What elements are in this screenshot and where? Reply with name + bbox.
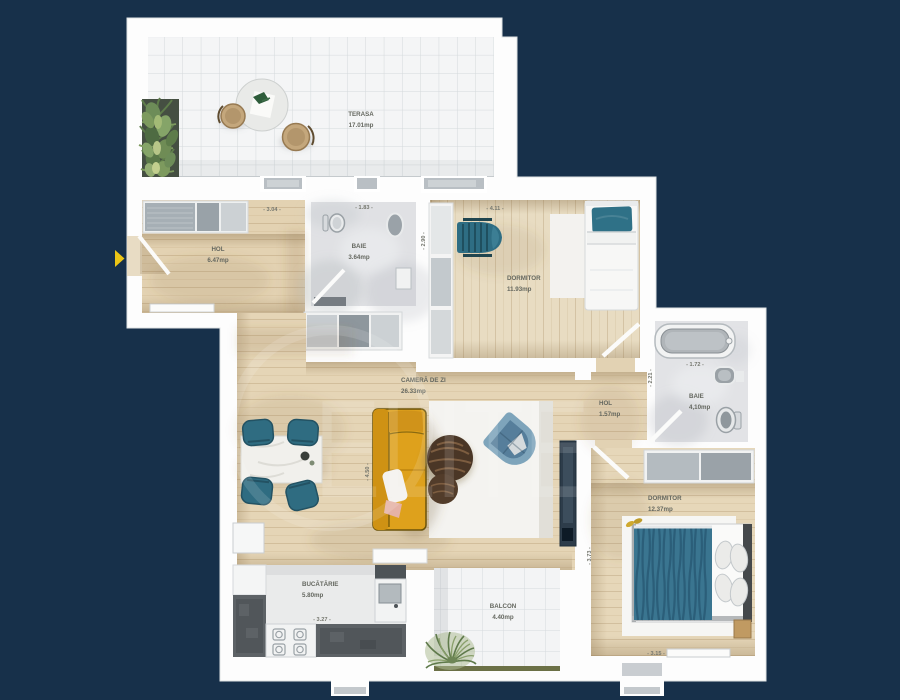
svg-text:ELITE: ELITE <box>314 371 589 527</box>
svg-text:17.01mp: 17.01mp <box>349 122 374 129</box>
svg-text:5.80mp: 5.80mp <box>302 592 324 599</box>
svg-text:- 3.15 -: - 3.15 - <box>647 651 665 657</box>
svg-text:12.37mp: 12.37mp <box>648 506 673 513</box>
svg-text:4.40mp: 4.40mp <box>492 614 514 621</box>
svg-text:- 2.90 -: - 2.90 - <box>421 232 427 250</box>
svg-text:- 2.21 -: - 2.21 - <box>648 369 654 387</box>
svg-text:DORMITOR: DORMITOR <box>648 495 682 502</box>
svg-text:- 3.73 -: - 3.73 - <box>587 547 593 565</box>
svg-text:DORMITOR: DORMITOR <box>507 275 541 282</box>
svg-text:- 1.72 -: - 1.72 - <box>686 362 704 368</box>
svg-text:HOL: HOL <box>599 400 612 407</box>
svg-text:- 1.83 -: - 1.83 - <box>355 205 373 211</box>
svg-text:BAIE: BAIE <box>352 243 367 250</box>
svg-text:BUCĂTĂRIE: BUCĂTĂRIE <box>302 581 338 588</box>
svg-text:TERASA: TERASA <box>348 111 374 118</box>
svg-text:- 3.27 -: - 3.27 - <box>313 617 331 623</box>
svg-text:BAIE: BAIE <box>689 393 704 400</box>
svg-text:6.47mp: 6.47mp <box>207 257 229 264</box>
svg-text:HOL: HOL <box>211 246 224 253</box>
svg-text:4,10mp: 4,10mp <box>689 404 711 411</box>
svg-text:- 4.11 -: - 4.11 - <box>486 206 504 212</box>
svg-text:- 3.04 -: - 3.04 - <box>263 207 281 213</box>
svg-text:1.57mp: 1.57mp <box>599 411 621 418</box>
svg-text:3.64mp: 3.64mp <box>348 254 370 261</box>
svg-text:BALCON: BALCON <box>490 603 517 610</box>
svg-text:11.93mp: 11.93mp <box>507 286 532 293</box>
